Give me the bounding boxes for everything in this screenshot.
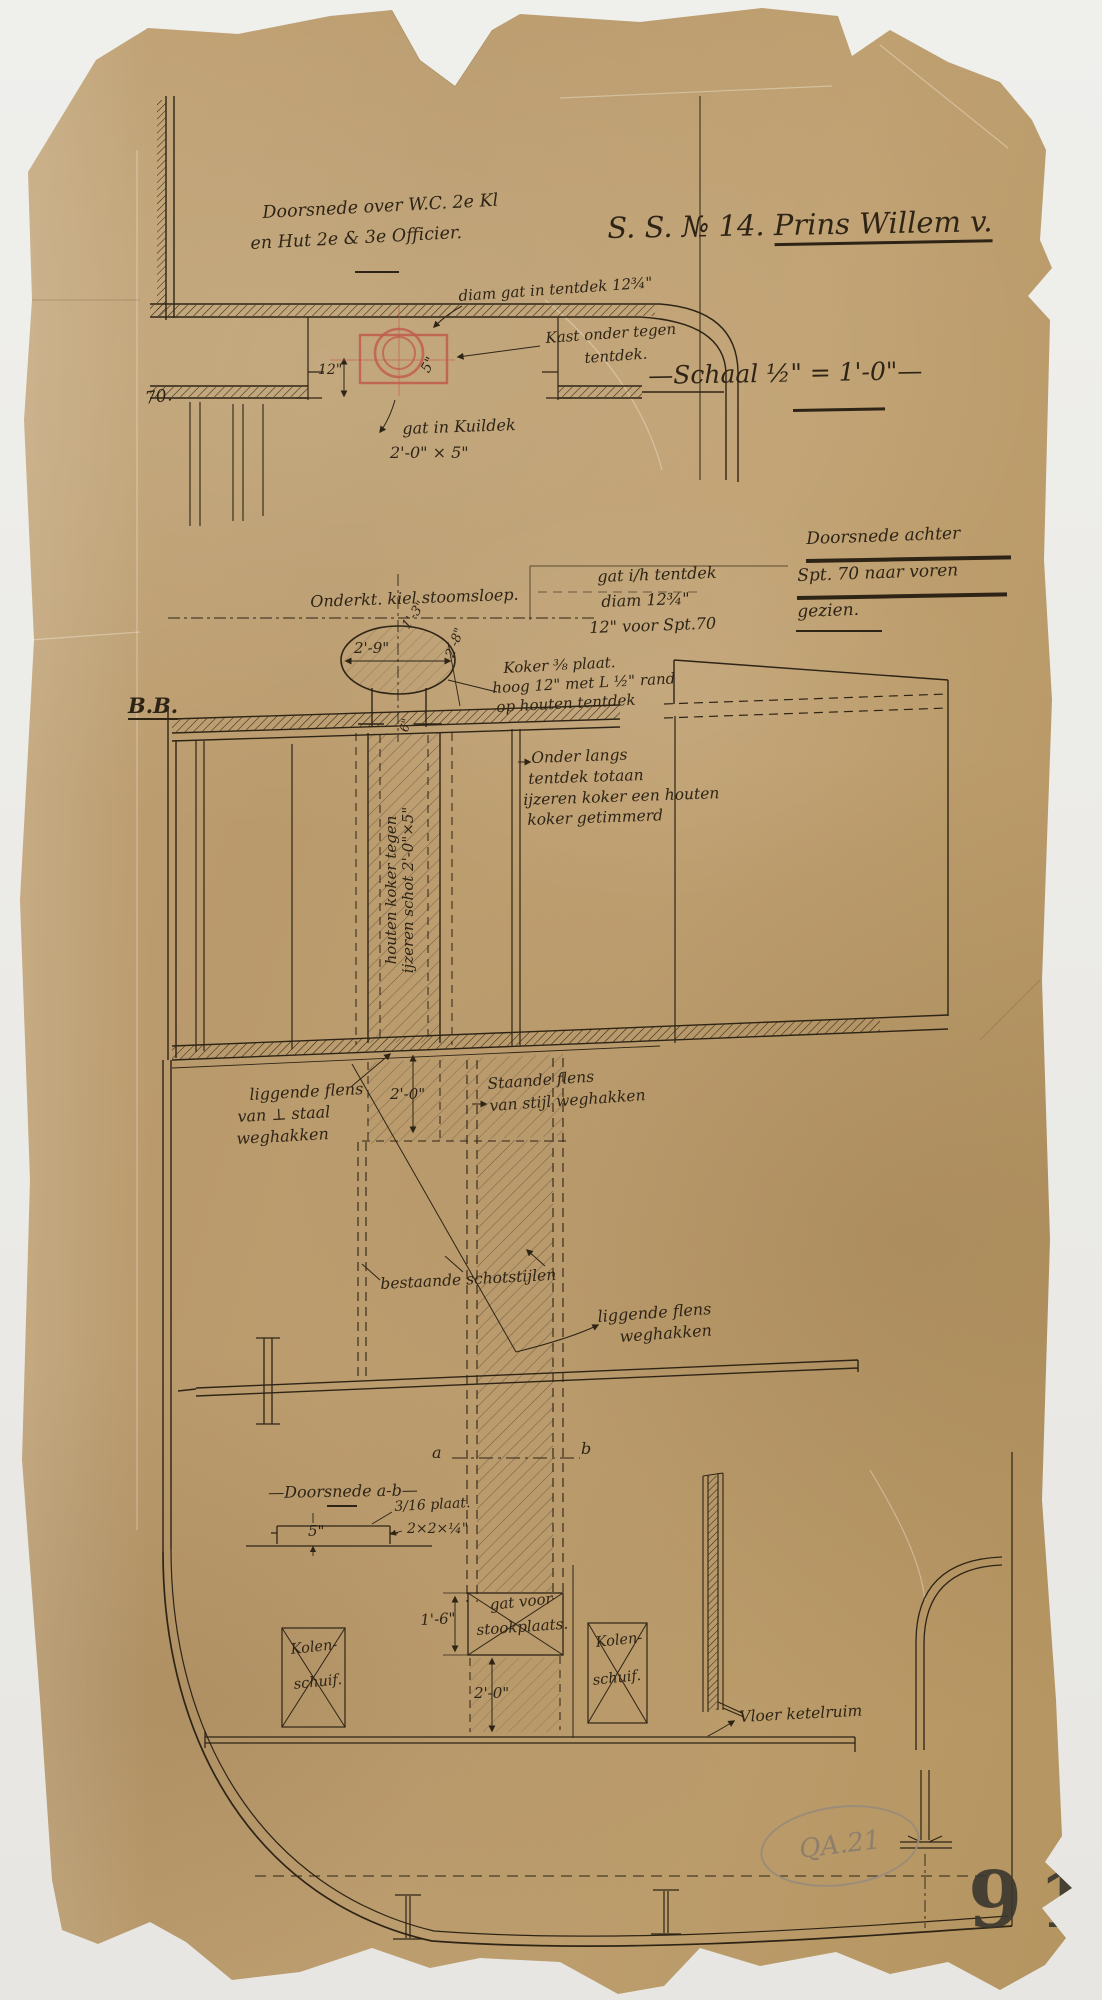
scanned-drawing-page: Doorsnede over W.C. 2e Kl en Hut 2e & 3e… (0, 0, 1102, 2000)
underline (327, 1505, 357, 1507)
dim-1-6: 1'-6" (420, 1610, 456, 1629)
schotstijl-hatch (477, 1140, 553, 1592)
dim-2-9: 2'-9" (354, 640, 389, 657)
note-gat-tentdek-2: diam 12¾" (601, 590, 690, 611)
note-angle-bar: 2×2×¼" (407, 1521, 468, 1537)
note-houten-koker-1: Onder langs (531, 747, 628, 768)
title-prefix: S. S. № 14. (607, 208, 765, 245)
underline (796, 630, 882, 632)
floor-ibeam-2 (651, 1890, 681, 1934)
stamp-number: 91 (968, 1856, 1102, 1946)
dim-2-0-tween: 2'-0" (390, 1086, 425, 1103)
section-label-a: a (432, 1444, 442, 1462)
dim-12in: 12" (318, 362, 342, 378)
note-gat-kuildek-2: 2'-0" × 5" (390, 444, 469, 462)
cruciform-bracket (256, 1338, 280, 1424)
floor-ibeam-1 (393, 1895, 423, 1939)
drawing-paper: Doorsnede over W.C. 2e Kl en Hut 2e & 3e… (0, 0, 1102, 2000)
dim-2-0-stook: 2'-0" (474, 1685, 509, 1702)
recess-arch (916, 1557, 1002, 1750)
scale-note: —Schaal ½" = 1'-0"— (648, 357, 923, 391)
note-gat-kuildek-1: gat in Kuildek (402, 416, 516, 438)
title-ship-name: Prins Willem v. (774, 204, 993, 246)
archive-mark: QA.21 (798, 1826, 882, 1866)
hull-shell-outer (163, 1552, 1012, 1946)
linework-svg (0, 0, 1102, 2000)
paper-creases-dark (20, 10, 1040, 1040)
view-caption-3: gezien. (797, 601, 859, 623)
frame-number-70: 70. (144, 386, 174, 409)
section-label-b: b (581, 1440, 591, 1458)
section-ab-detail (246, 1526, 432, 1546)
vertical-note-houten-koker: houten koker tegen ijzeren schot 2'-0"×5… (383, 807, 418, 973)
section-mark-bb: B.B. (128, 694, 178, 718)
drawing-title: S. S. № 14. Prins Willem v. (607, 205, 993, 245)
red-pencil-annotation (330, 306, 455, 396)
ketelruim-floor (205, 1731, 855, 1752)
dim-5-ab: 5" (308, 1523, 324, 1540)
underline (355, 271, 399, 273)
